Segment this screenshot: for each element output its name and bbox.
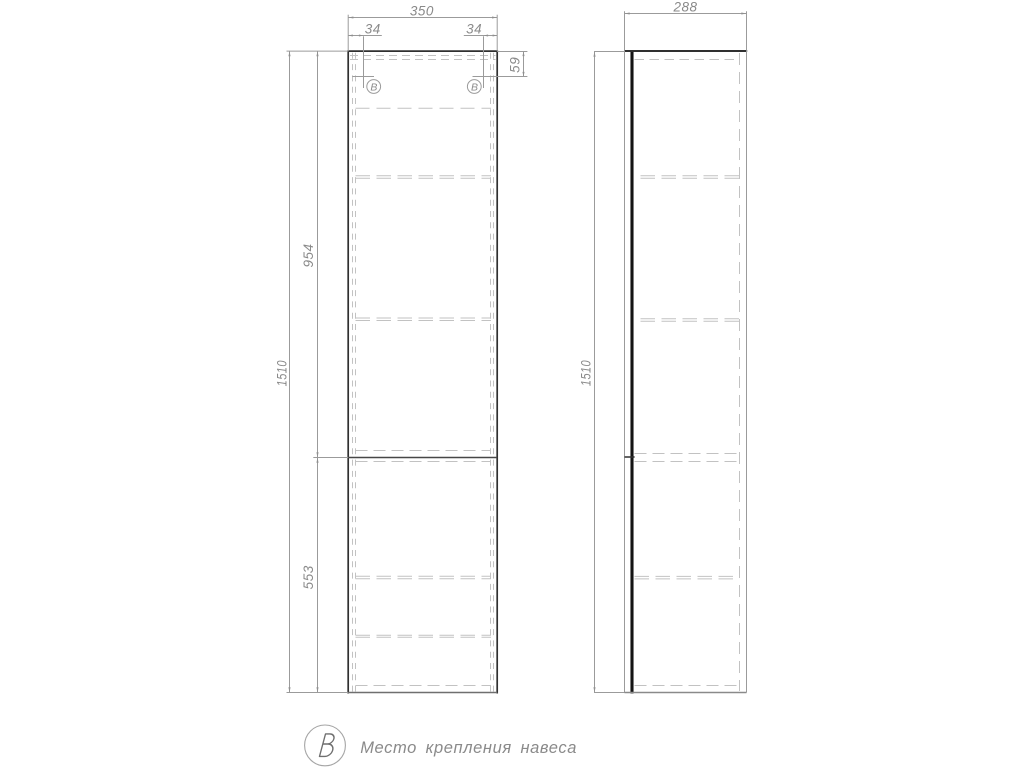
- svg-text:1510: 1510: [274, 360, 289, 386]
- svg-text:1510: 1510: [579, 360, 594, 386]
- svg-text:59: 59: [507, 57, 522, 73]
- svg-text:34: 34: [365, 21, 381, 36]
- svg-text:Место крепления навеса: Место крепления навеса: [360, 739, 577, 757]
- svg-text:350: 350: [410, 4, 434, 19]
- svg-text:553: 553: [301, 565, 316, 589]
- svg-text:B: B: [370, 81, 377, 93]
- svg-text:B: B: [471, 81, 478, 93]
- svg-text:954: 954: [301, 243, 316, 267]
- svg-text:288: 288: [672, 0, 697, 14]
- svg-text:34: 34: [466, 21, 482, 36]
